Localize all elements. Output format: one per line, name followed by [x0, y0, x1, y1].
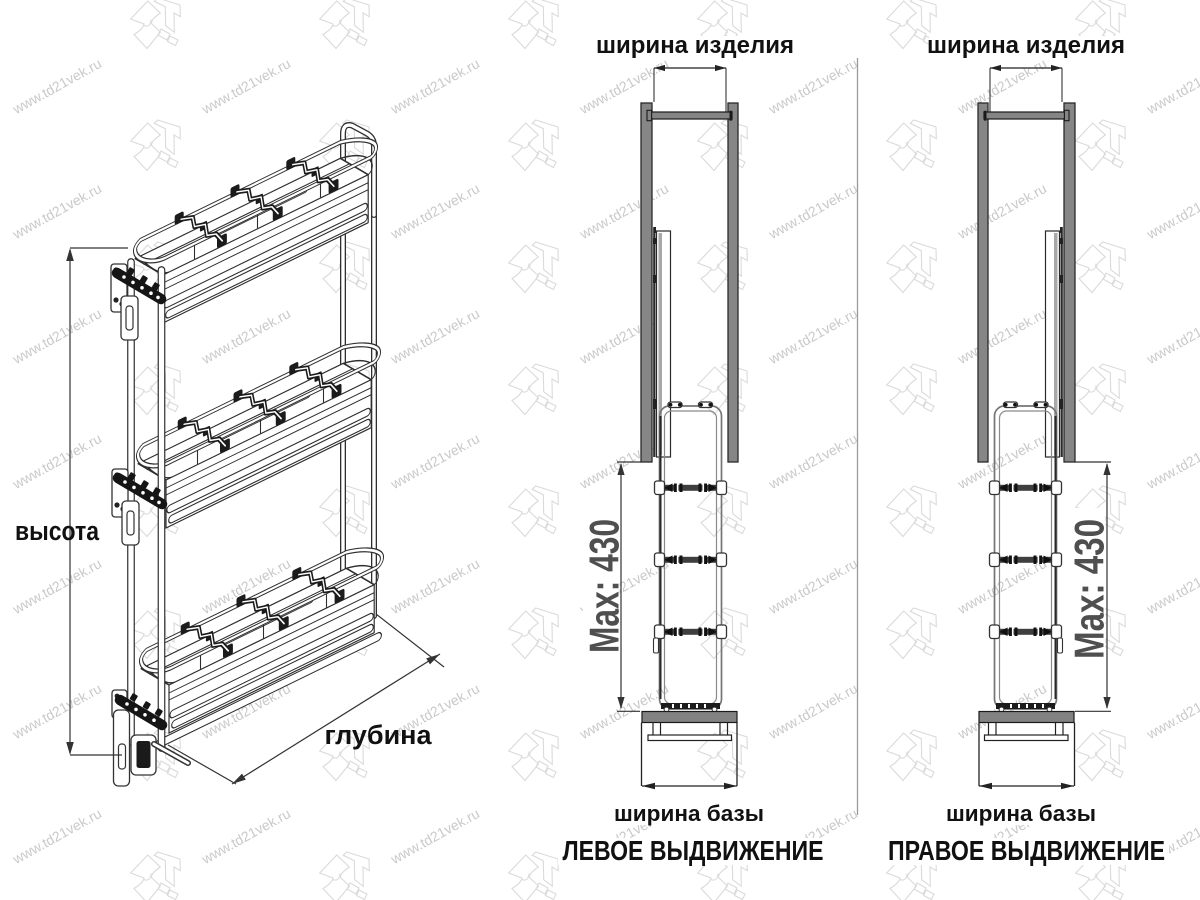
svg-text:высота: высота: [15, 516, 100, 546]
svg-text:Max: 430: Max: 430: [1066, 519, 1113, 659]
svg-text:глубина: глубина: [325, 720, 433, 750]
svg-text:Max: 430: Max: 430: [581, 519, 628, 653]
svg-text:ПРАВОЕ ВЫДВИЖЕНИЕ: ПРАВОЕ ВЫДВИЖЕНИЕ: [888, 835, 1165, 866]
svg-text:ширина базы: ширина базы: [614, 801, 764, 826]
svg-text:ширина изделия: ширина изделия: [927, 32, 1125, 59]
svg-text:ширина изделия: ширина изделия: [596, 32, 794, 59]
svg-text:ЛЕВОЕ ВЫДВИЖЕНИЕ: ЛЕВОЕ ВЫДВИЖЕНИЕ: [563, 835, 824, 866]
svg-text:ширина базы: ширина базы: [946, 801, 1096, 826]
